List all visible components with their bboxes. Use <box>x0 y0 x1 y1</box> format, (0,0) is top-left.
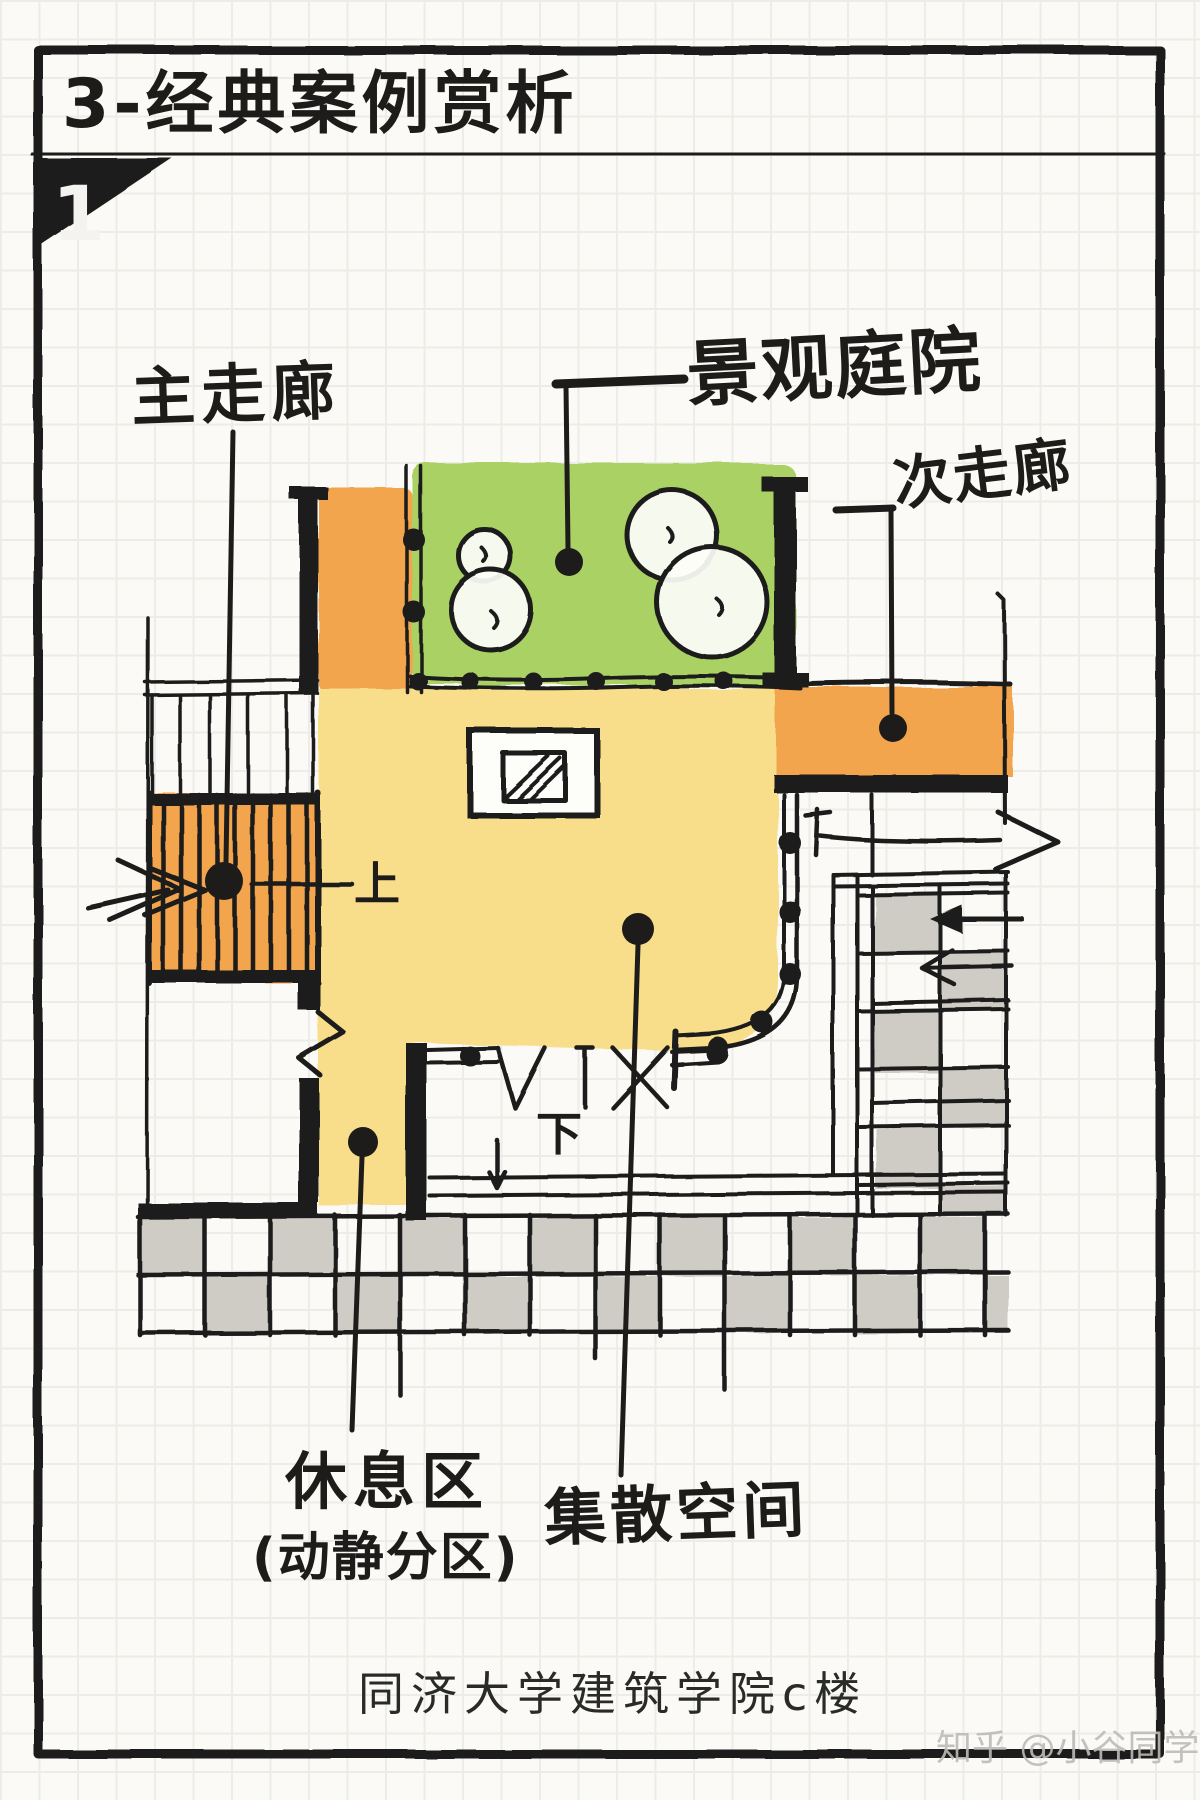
down-arrow <box>489 1140 505 1188</box>
hand-drawn-floor-plan-canvas: 主走廊 景观庭院 次走廊 休息区 (动静分区) 集散空间 上 下 同济大学建筑学… <box>0 0 1200 1800</box>
label-gathering-space: 集散空间 <box>542 1473 809 1555</box>
planter-square <box>470 731 597 815</box>
title-separator <box>34 153 1162 155</box>
caption-building-name: 同济大学建筑学院c楼 <box>358 1667 867 1721</box>
wall-secondary-north <box>780 682 1010 684</box>
label-main-corridor: 主走廊 <box>130 355 342 436</box>
wall-secondary-south <box>774 775 1008 793</box>
marker-stair-up: 上 <box>354 857 400 911</box>
marker-stair-down: 下 <box>536 1107 582 1161</box>
page-title: 3-经典案例赏析 <box>62 65 578 144</box>
wall-southwest <box>138 1203 318 1217</box>
wall-courtyard-east <box>774 480 796 686</box>
wall-south-block <box>406 1043 427 1221</box>
watermark: 知乎 @小谷同学 <box>936 1728 1199 1769</box>
break-cross <box>613 1048 668 1108</box>
page-number: 1 <box>52 169 105 258</box>
door-tick <box>806 810 831 855</box>
label-landscape-courtyard: 景观庭院 <box>684 318 984 417</box>
label-rest-area: 休息区 <box>284 1445 489 1518</box>
zone-west-corridor-orange <box>318 488 412 691</box>
label-rest-area-sub: (动静分区) <box>252 1528 520 1588</box>
wall-west <box>299 489 318 693</box>
stair-zigzag <box>498 1048 545 1108</box>
label-secondary-corridor: 次走廊 <box>889 429 1076 518</box>
plan-zones <box>148 463 1013 1205</box>
